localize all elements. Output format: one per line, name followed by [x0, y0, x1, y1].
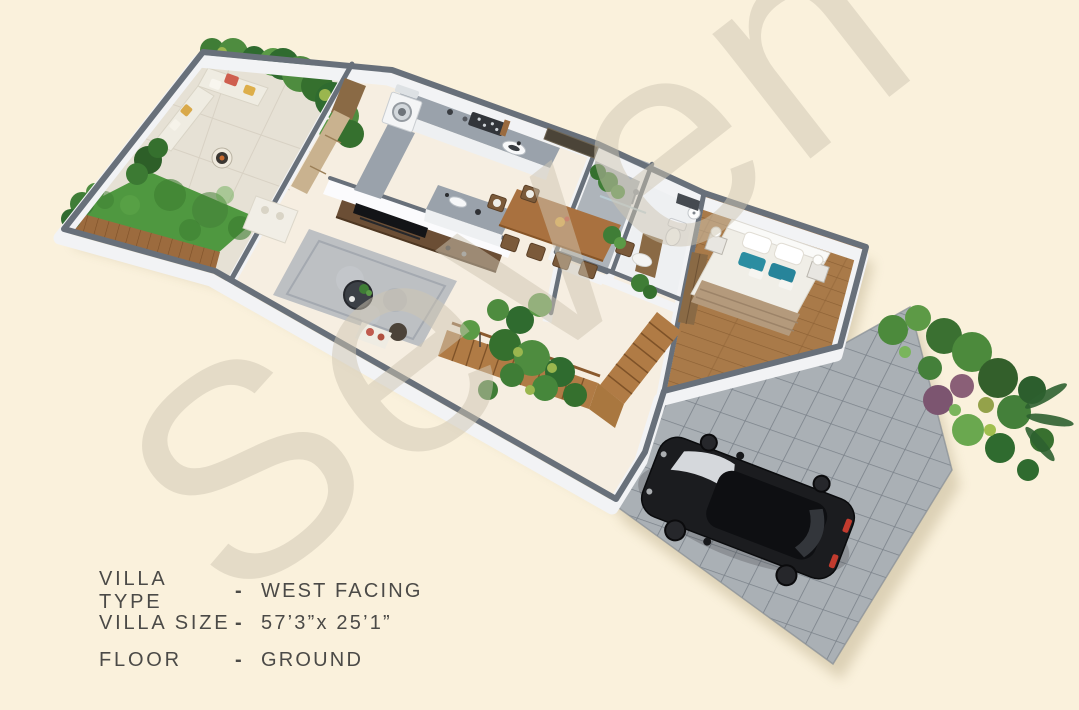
fire-pit — [212, 148, 232, 168]
floor-value: GROUND — [261, 649, 423, 672]
floor-separator: - — [235, 649, 242, 672]
villa-type-separator: - — [235, 580, 242, 603]
villa-size-value: 57’3”x 25’1” — [261, 612, 423, 635]
villa-type-value: WEST FACING — [261, 580, 423, 603]
villa-info-panel: VILLA TYPE - WEST FACING VILLA SIZE - 57… — [99, 568, 423, 679]
villa-floorplan-page: Seven VILLA TYPE - WEST FACING VILLA SIZ… — [0, 0, 1079, 710]
info-row-floor: FLOOR - GROUND — [99, 642, 423, 679]
villa-size-label: VILLA SIZE — [99, 612, 235, 635]
villa-type-label: VILLA TYPE — [99, 568, 235, 614]
info-row-villa-type: VILLA TYPE - WEST FACING — [99, 568, 423, 605]
villa-size-separator: - — [235, 612, 242, 635]
floor-label: FLOOR — [99, 649, 235, 672]
